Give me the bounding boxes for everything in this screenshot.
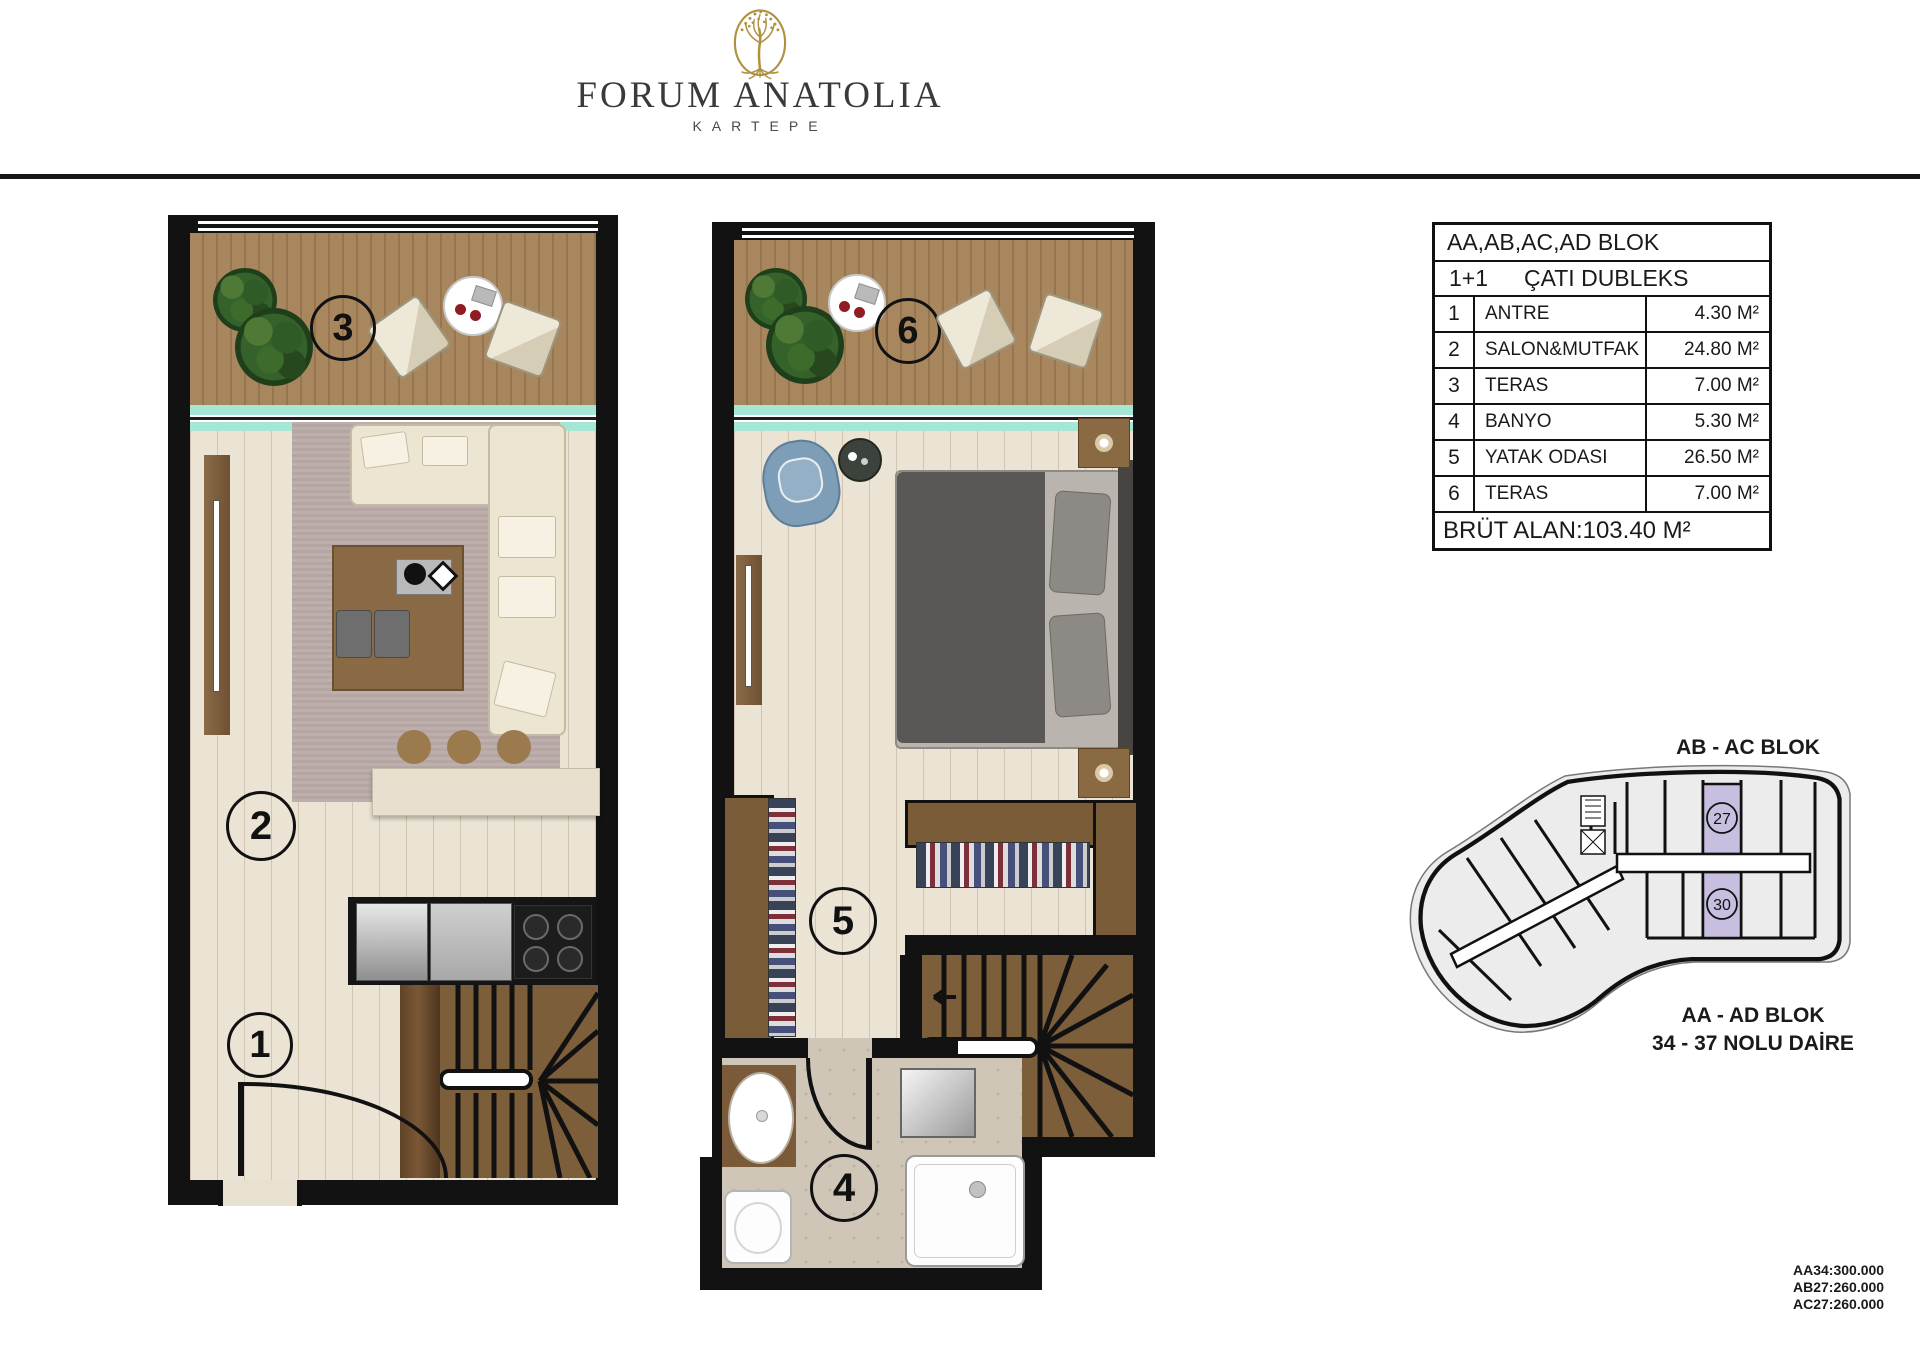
upper-plan-window-line	[742, 235, 1134, 238]
table-row: 6 TERAS 7.00 M²	[1435, 477, 1769, 513]
lower-plan-window-line	[198, 221, 598, 224]
row-name: TERAS	[1475, 369, 1647, 403]
table-plan-header: 1+1 ÇATI DUBLEKS	[1435, 262, 1769, 297]
wardrobe-clothes	[768, 798, 796, 1037]
tv-unit	[204, 455, 230, 735]
bed-pillow	[1049, 490, 1112, 596]
gross-area-value: 103.40 M²	[1583, 517, 1691, 545]
row-area: 24.80 M²	[1647, 333, 1769, 367]
dining-chair	[374, 610, 410, 658]
siteplan-bottom-label-1: AA - AD BLOK	[1681, 1004, 1824, 1028]
shower-glass-unit	[900, 1068, 976, 1138]
kitchen-island	[372, 768, 600, 816]
bar-stool	[497, 730, 531, 764]
room-label-antre-1: 1	[227, 1012, 293, 1078]
closet-right	[1093, 800, 1139, 954]
bath-sink	[728, 1072, 794, 1164]
gross-area-colon: :	[1576, 517, 1583, 545]
table-row: 5 YATAK ODASI 26.50 M²	[1435, 441, 1769, 477]
header-divider	[0, 174, 1920, 179]
bed-headboard	[1118, 460, 1133, 755]
table-block-header: AA,AB,AC,AD BLOK	[1435, 225, 1769, 262]
nightstand	[1078, 748, 1130, 798]
bar-stool	[447, 730, 481, 764]
wall-panel	[736, 555, 762, 705]
unit-type: 1+1	[1449, 265, 1488, 292]
row-area: 7.00 M²	[1647, 369, 1769, 403]
upper-terrace-glass	[734, 405, 1133, 431]
bath-door-threshold	[808, 1038, 872, 1058]
closet-clothes	[916, 842, 1090, 888]
dining-chair	[336, 610, 372, 658]
toilet	[724, 1190, 792, 1264]
room-label-teras-3: 3	[310, 295, 376, 361]
bath-wall-seg	[712, 1038, 808, 1058]
row-no: 6	[1435, 477, 1475, 511]
table-row: 1 ANTRE 4.30 M²	[1435, 297, 1769, 333]
table-row: 2 SALON&MUTFAK 24.80 M²	[1435, 333, 1769, 369]
plan-name: ÇATI DUBLEKS	[1524, 265, 1688, 292]
row-name: SALON&MUTFAK	[1475, 333, 1647, 367]
brand-subtitle: KARTEPE	[460, 118, 1060, 134]
bar-stool	[397, 730, 431, 764]
gross-area-row: BRÜT ALAN:103.40 M²	[1435, 513, 1769, 548]
siteplan-key-drawing: 27 30	[1395, 762, 1860, 1040]
bed-duvet	[897, 472, 1045, 743]
price-line: AC27:260.000	[1793, 1296, 1913, 1313]
siteplan-bottom-label-2: 34 - 37 NOLU DAİRE	[1652, 1032, 1854, 1056]
row-no: 5	[1435, 441, 1475, 475]
row-area: 26.50 M²	[1647, 441, 1769, 475]
row-no: 3	[1435, 369, 1475, 403]
sofa-chaise	[488, 424, 566, 736]
lower-plan-window-line	[198, 228, 598, 231]
price-line: AA34:300.000	[1793, 1262, 1913, 1279]
room-label-teras-6: 6	[875, 298, 941, 364]
row-area: 7.00 M²	[1647, 477, 1769, 511]
staircase-lower	[440, 985, 598, 1178]
room-label-salon-2: 2	[226, 791, 296, 861]
nightstand	[1078, 418, 1130, 468]
entry-door-sill	[218, 1180, 302, 1206]
brochure-page: FORUM ANATOLIA KARTEPE 3 2	[0, 0, 1920, 1358]
table-row: 4 BANYO 5.30 M²	[1435, 405, 1769, 441]
unit-circle-27: 27	[1713, 811, 1731, 828]
bedroom-side-table	[838, 438, 882, 482]
siteplan-top-label: AB - AC BLOK	[1676, 736, 1820, 760]
stair-divider-wall	[905, 935, 1155, 955]
bed-pillow	[1049, 612, 1112, 718]
table-row: 3 TERAS 7.00 M²	[1435, 369, 1769, 405]
upper-plan-window-line	[742, 228, 1134, 231]
plant	[235, 308, 313, 386]
price-list: AA34:300.000 AB27:260.000 AC27:260.000	[1793, 1262, 1913, 1313]
room-label-banyo-4: 4	[810, 1154, 878, 1222]
kitchen-counter	[348, 897, 596, 985]
row-name: TERAS	[1475, 477, 1647, 511]
price-line: AB27:260.000	[1793, 1279, 1913, 1296]
row-name: YATAK ODASI	[1475, 441, 1647, 475]
row-name: ANTRE	[1475, 297, 1647, 331]
row-no: 1	[1435, 297, 1475, 331]
unit-area-table: AA,AB,AC,AD BLOK 1+1 ÇATI DUBLEKS 1 ANTR…	[1432, 222, 1772, 551]
row-area: 4.30 M²	[1647, 297, 1769, 331]
row-no: 2	[1435, 333, 1475, 367]
unit-circle-30: 30	[1713, 897, 1731, 914]
row-area: 5.30 M²	[1647, 405, 1769, 439]
brand-title: FORUM ANATOLIA	[460, 74, 1060, 117]
row-name: BANYO	[1475, 405, 1647, 439]
wardrobe-left	[722, 795, 774, 1044]
room-label-yatak-5: 5	[809, 887, 877, 955]
gross-area-label: BRÜT ALAN	[1443, 517, 1576, 545]
bath-wall-seg	[872, 1038, 958, 1058]
shower-tray	[905, 1155, 1025, 1267]
row-no: 4	[1435, 405, 1475, 439]
